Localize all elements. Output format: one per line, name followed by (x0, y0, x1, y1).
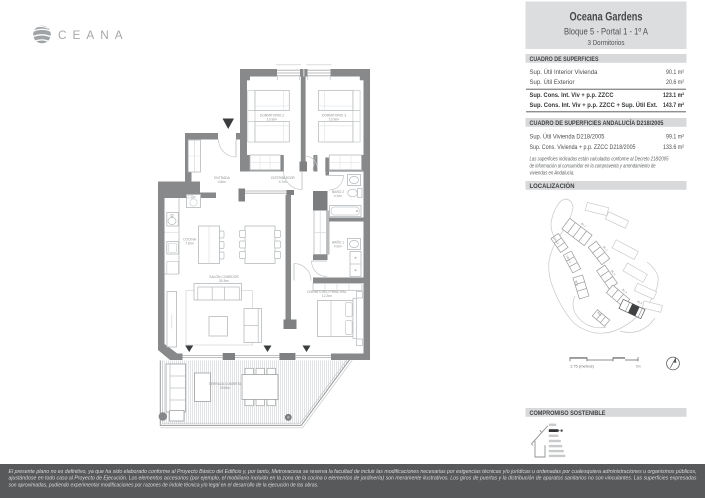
svg-text:10.9m²: 10.9m² (329, 118, 340, 122)
svg-text:LAV: LAV (191, 195, 196, 199)
svg-text:de información al consumidor e: de información al consumidor en la compr… (530, 164, 656, 170)
svg-text:Sup. Útil Interior Vivienda: Sup. Útil Interior Vivienda (530, 67, 598, 76)
svg-text:CUADRO DE SUPERFICIES ANDALUCÍ: CUADRO DE SUPERFICIES ANDALUCÍA D218/200… (530, 118, 664, 127)
svg-text:Sup. Cons. Int. Viv + p.p. ZZC: Sup. Cons. Int. Viv + p.p. ZZCC (530, 92, 614, 99)
svg-text:Sup. Útil Exterior: Sup. Útil Exterior (530, 77, 576, 86)
svg-text:Sup. Útil Vivienda D218/2005: Sup. Útil Vivienda D218/2005 (530, 132, 605, 141)
svg-text:3 Dormitorios: 3 Dormitorios (588, 40, 625, 47)
svg-text:20.6m²: 20.6m² (220, 386, 231, 390)
svg-text:son aproximadas, pudiendo expe: son aproximadas, pudiendo experimentar m… (9, 482, 319, 488)
svg-text:12.3m²: 12.3m² (322, 294, 333, 298)
svg-text:30.3m²: 30.3m² (219, 279, 230, 283)
svg-text:10.9m²: 10.9m² (267, 118, 278, 122)
svg-text:4.0m²: 4.0m² (334, 245, 343, 249)
svg-text:99.1 m²: 99.1 m² (666, 134, 685, 141)
svg-text:7.8m²: 7.8m² (185, 242, 194, 246)
svg-text:Sup. Cons. Vivienda + p.p. ZZC: Sup. Cons. Vivienda + p.p. ZZCC D218/200… (530, 144, 636, 151)
svg-text:CEANA: CEANA (58, 28, 129, 42)
svg-text:Bloque 5 - Portal 1 - 1º A: Bloque 5 - Portal 1 - 1º A (564, 27, 648, 37)
svg-text:20.6 m²: 20.6 m² (666, 79, 685, 86)
svg-text:LOCALIZACIÓN: LOCALIZACIÓN (530, 181, 575, 190)
svg-text:123.1 m²: 123.1 m² (663, 92, 685, 99)
svg-text:viviendas en Andalucía.: viviendas en Andalucía. (530, 171, 575, 177)
svg-text:Sup. Cons. Int. Viv + p.p. ZZC: Sup. Cons. Int. Viv + p.p. ZZCC + Sup. Ú… (530, 100, 658, 109)
svg-text:BL.5: BL.5 (637, 299, 644, 305)
svg-text:Oceana Gardens: Oceana Gardens (570, 10, 643, 24)
svg-text:1:75 (metros): 1:75 (metros) (570, 364, 594, 369)
svg-text:143.7 m²: 143.7 m² (663, 102, 685, 109)
svg-text:90.1 m²: 90.1 m² (666, 69, 685, 76)
svg-text:COMPROMISO SOSTENIBLE: COMPROMISO SOSTENIBLE (530, 410, 606, 417)
svg-text:CUADRO DE SUPERFICIES: CUADRO DE SUPERFICIES (530, 56, 599, 63)
svg-text:4.7m²: 4.7m² (279, 180, 288, 184)
svg-text:4.1m²: 4.1m² (334, 194, 343, 198)
svg-text:Las superficies indicadas está: Las superficies indicadas están calculad… (530, 157, 670, 163)
svg-text:El presente plano no es defini: El presente plano no es definitivo, ya q… (9, 469, 697, 475)
svg-text:5m: 5m (636, 365, 641, 369)
svg-text:133.6 m²: 133.6 m² (663, 144, 685, 151)
svg-text:4.8m²: 4.8m² (218, 180, 227, 184)
svg-text:ajustándose en todo caso al Pr: ajustándose en todo caso al Proyecto de … (9, 476, 698, 482)
